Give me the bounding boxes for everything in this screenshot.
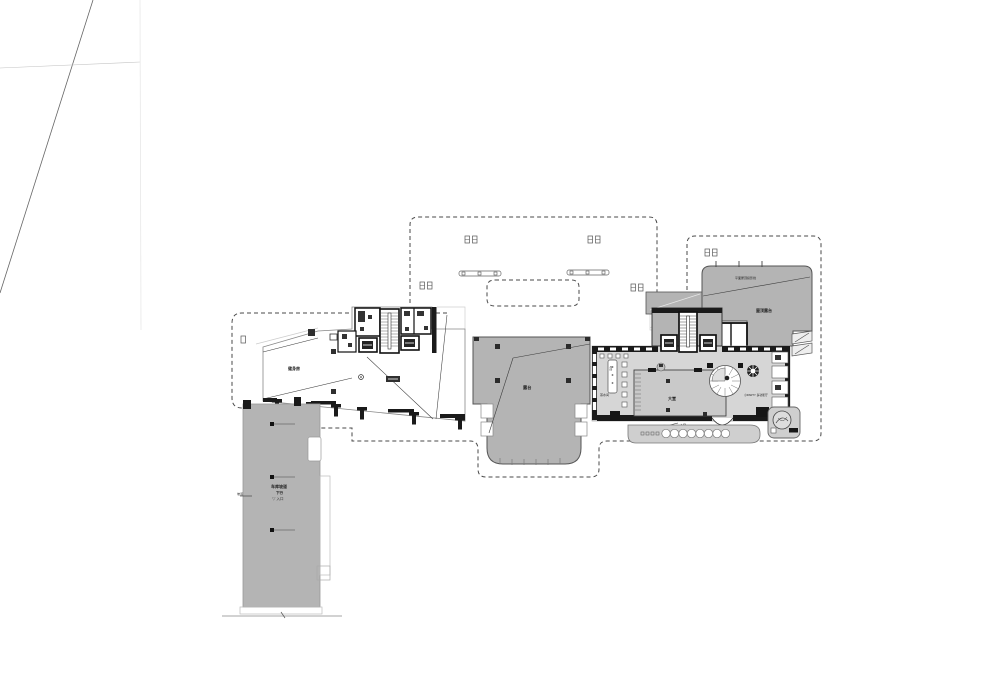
column-icon xyxy=(241,336,246,343)
elevator-icon xyxy=(401,336,419,350)
elevator-icon xyxy=(359,338,377,352)
floor-plan-drawing: 露台 机房 平面屋顶投影线 屋顶露台 xyxy=(0,0,1000,680)
lobby-left-wall xyxy=(592,346,597,420)
party-room-label: 小PARTY 多功能厅 xyxy=(744,393,768,397)
left-room-label: 健身房 xyxy=(288,365,300,371)
garage-ramp: 车库坡道 下行 ▽ 入口 坡道 xyxy=(222,397,342,618)
elevator-icon xyxy=(700,335,716,351)
terrace-label: 露台 xyxy=(523,384,531,391)
site-boundary-lines xyxy=(0,0,141,330)
entry-arc-icon xyxy=(712,418,733,425)
ramp-title-label: 车库坡道 xyxy=(271,483,287,489)
lobby-label: 大堂 xyxy=(668,395,676,401)
ramp-sub-label: 下行 xyxy=(276,490,284,495)
bar-label: 吧台 xyxy=(609,366,613,372)
south-terrace-band xyxy=(628,425,760,443)
stair-icon xyxy=(380,309,399,353)
tree-icon xyxy=(773,411,791,429)
exterior-steps-icon xyxy=(792,331,812,356)
floor-plan-canvas: 露台 机房 平面屋顶投影线 屋顶露台 xyxy=(0,0,1000,680)
canopy-dashed-boundary xyxy=(410,217,657,305)
elevator-icon xyxy=(661,335,677,351)
ramp-entry-label: ▽ 入口 xyxy=(272,496,284,501)
louver-icon xyxy=(567,270,609,275)
column-pair-icon xyxy=(631,284,643,291)
pantry-label: 茶水间 xyxy=(600,392,609,397)
tree-label: 树池 xyxy=(789,429,795,433)
central-terrace: 露台 xyxy=(473,337,590,465)
roof-projection-label: 平面屋顶投影线 xyxy=(735,275,756,280)
plant-icon xyxy=(747,365,759,377)
tree-planter: 树池 xyxy=(768,407,800,438)
louver-icon xyxy=(459,271,501,276)
inner-dashed-rect xyxy=(487,280,579,306)
roof-terrace-label: 屋顶露台 xyxy=(756,307,772,313)
column-pair-icon xyxy=(588,236,600,243)
stair-icon xyxy=(679,312,697,352)
lobby-building: 大堂 吧台 茶水间 xyxy=(592,346,790,428)
column-pair-icon xyxy=(420,282,432,289)
column-pair-icon xyxy=(705,249,717,256)
column-pair-icon xyxy=(465,236,477,243)
ramp-flag-label: 坡道 xyxy=(237,491,243,496)
canopy-columns xyxy=(241,236,717,343)
lobby-core xyxy=(652,308,722,352)
